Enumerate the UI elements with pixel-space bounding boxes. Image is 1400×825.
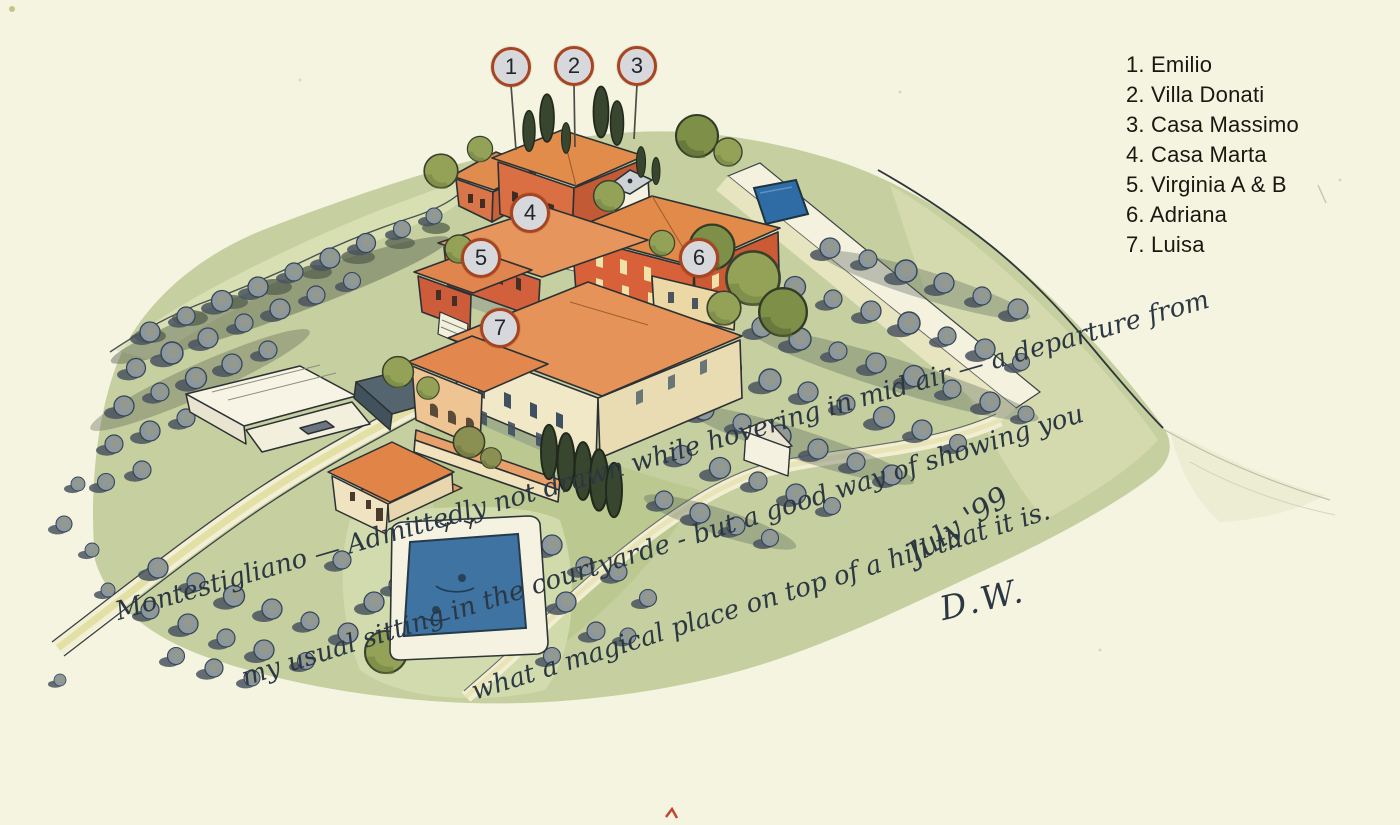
montestigliano-map: 1 2 3 4 5 6 7 1. Emilio 2. Villa Donati … xyxy=(0,0,1400,825)
marker-number: 4 xyxy=(524,200,536,226)
legend-item-adriana: 6. Adriana xyxy=(1126,200,1299,230)
marker-number: 6 xyxy=(693,245,705,271)
marker-number: 1 xyxy=(505,54,517,80)
marker-3-casa-massimo: 3 xyxy=(617,46,657,86)
legend-item-virginia: 5. Virginia A & B xyxy=(1126,170,1299,200)
legend-item-luisa: 7. Luisa xyxy=(1126,230,1299,260)
legend: 1. Emilio 2. Villa Donati 3. Casa Massim… xyxy=(1126,50,1299,260)
legend-item-casa-marta: 4. Casa Marta xyxy=(1126,140,1299,170)
legend-item-villa-donati: 2. Villa Donati xyxy=(1126,80,1299,110)
marker-6-adriana: 6 xyxy=(679,238,719,278)
marker-number: 7 xyxy=(494,315,506,341)
marker-5-virginia: 5 xyxy=(461,238,501,278)
marker-number: 2 xyxy=(568,53,580,79)
marker-number: 5 xyxy=(475,245,487,271)
marker-7-luisa: 7 xyxy=(480,308,520,348)
legend-item-casa-massimo: 3. Casa Massimo xyxy=(1126,110,1299,140)
marker-2-villa-donati: 2 xyxy=(554,46,594,86)
legend-item-emilio: 1. Emilio xyxy=(1126,50,1299,80)
marker-4-casa-marta: 4 xyxy=(510,193,550,233)
marker-1-emilio: 1 xyxy=(491,47,531,87)
marker-number: 3 xyxy=(631,53,643,79)
